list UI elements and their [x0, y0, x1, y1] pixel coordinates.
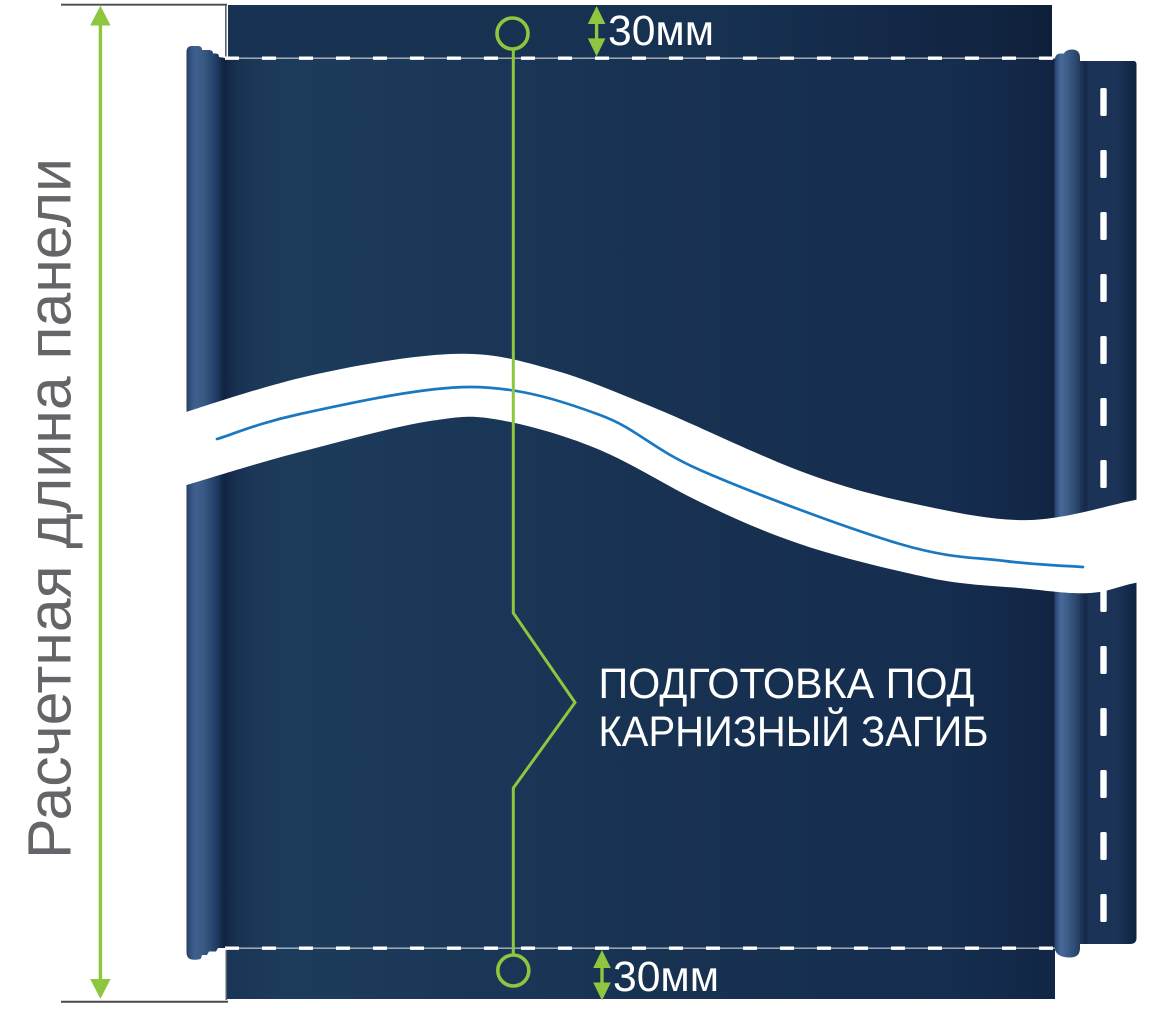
svg-text:КАРНИЗНЫЙ ЗАГИБ: КАРНИЗНЫЙ ЗАГИБ: [599, 707, 989, 756]
svg-text:Расчетная длина панели: Расчетная длина панели: [16, 158, 84, 859]
svg-text:30мм: 30мм: [613, 953, 719, 1001]
svg-text:30мм: 30мм: [608, 7, 714, 55]
svg-text:ПОДГОТОВКА ПОД: ПОДГОТОВКА ПОД: [599, 661, 975, 708]
